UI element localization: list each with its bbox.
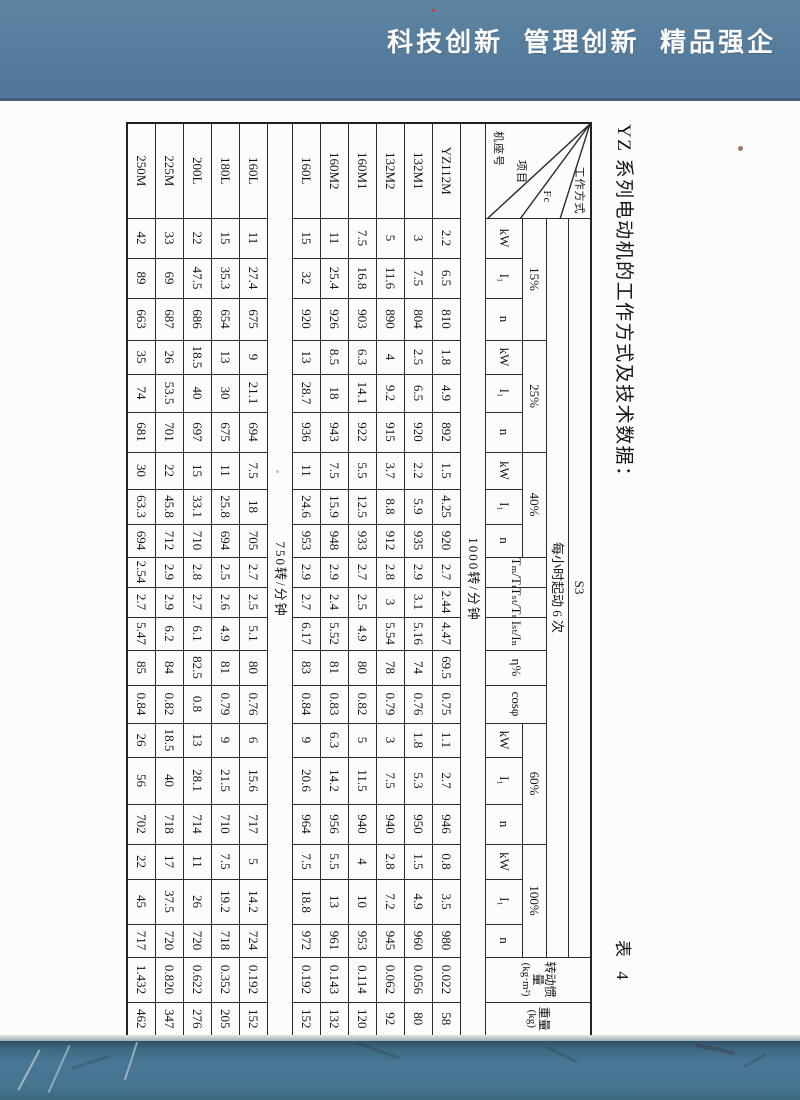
sub-col-header-i: I₁ (486, 374, 523, 412)
value-cell: 717 (127, 924, 156, 957)
value-cell: 717 (240, 804, 268, 844)
value-cell: 912 (377, 524, 405, 557)
sub-col-header-kw: kW (486, 723, 523, 757)
weight-unit: (kg) (526, 1003, 538, 1036)
value-cell: 4.9 (433, 374, 461, 412)
value-cell: 953 (349, 924, 377, 957)
value-cell: 81 (212, 650, 240, 685)
value-cell: 8.5 (321, 340, 349, 374)
value-cell: 0.022 (433, 957, 461, 1002)
value-cell: 0.82 (349, 685, 377, 723)
value-cell: 2.9 (156, 587, 184, 617)
value-cell: 27.4 (240, 258, 268, 298)
value-cell: 26 (184, 879, 212, 924)
value-cell: 1.1 (433, 723, 461, 757)
value-cell: 946 (433, 804, 461, 844)
table-row: 160L15329201328.79361124.69532.92.76.178… (293, 123, 321, 1036)
value-cell: 4.9 (405, 879, 433, 924)
table-row: 200L2247.568618.5406971533.17102.82.76.1… (184, 123, 212, 1036)
value-cell: 58 (433, 1002, 461, 1036)
value-cell: 0.76 (240, 685, 268, 723)
value-cell: 694 (240, 412, 268, 452)
value-cell: 0.622 (184, 957, 212, 1002)
value-cell: 6.3 (321, 723, 349, 757)
value-cell: 675 (240, 298, 268, 340)
value-cell: 74 (127, 374, 156, 412)
value-cell: 16.8 (349, 258, 377, 298)
value-cell: 20.6 (293, 757, 321, 804)
value-cell: 4 (349, 844, 377, 879)
value-cell: 152 (293, 1002, 321, 1036)
value-cell: 3 (377, 723, 405, 757)
table-caption: 表 4 (612, 940, 637, 985)
value-cell: 2.9 (156, 557, 184, 587)
sub-col-header-i: I₁ (486, 879, 523, 924)
value-cell: 37.5 (156, 879, 184, 924)
value-cell: 22 (184, 218, 212, 258)
value-cell: 2.5 (212, 557, 240, 587)
corner-cell: 工作方式Fc项目机座号 (486, 123, 592, 218)
value-cell: 7.5 (405, 258, 433, 298)
sub-col-header-n: n (486, 298, 523, 340)
value-cell: 22 (156, 452, 184, 489)
value-cell: 0.143 (321, 957, 349, 1002)
value-cell: 697 (184, 412, 212, 452)
value-cell: 21.5 (212, 757, 240, 804)
value-cell: 2.5 (240, 587, 268, 617)
sub-col-header-n: n (486, 924, 523, 957)
value-cell: 0.76 (405, 685, 433, 723)
value-cell: 81 (321, 650, 349, 685)
value-cell: 32 (293, 258, 321, 298)
value-cell: 2.7 (293, 587, 321, 617)
frame-size-cell: 250M (127, 123, 156, 218)
frame-size-cell: 200L (184, 123, 212, 218)
value-cell: 15.9 (321, 489, 349, 524)
ratio-col-header-0: Tₘ/Tₙ (486, 557, 547, 587)
value-cell: 1.5 (433, 452, 461, 489)
value-cell: 7.5 (240, 452, 268, 489)
value-cell: 11.5 (349, 757, 377, 804)
value-cell: 2.54 (127, 557, 156, 587)
table-row: 160M17.516.89036.314.19225.512.59332.72.… (349, 123, 377, 1036)
dust-speck (738, 146, 743, 151)
frame-size-cell: 160M1 (349, 123, 377, 218)
value-cell: 2.9 (405, 557, 433, 587)
table-row: 每小时起动 6 次 (547, 123, 569, 1036)
value-cell: 2.7 (240, 557, 268, 587)
value-cell: 11 (212, 452, 240, 489)
value-cell: 915 (377, 412, 405, 452)
smudge-mark (695, 1043, 735, 1055)
value-cell: 2.9 (293, 557, 321, 587)
value-cell: 2.5 (349, 587, 377, 617)
value-cell: 6 (240, 723, 268, 757)
value-cell: 2.8 (184, 557, 212, 587)
weight-title: 重量 (537, 1003, 550, 1036)
value-cell: 13 (293, 340, 321, 374)
value-cell: 5.47 (127, 617, 156, 650)
value-cell: 13 (321, 879, 349, 924)
value-cell: 2.7 (433, 557, 461, 587)
value-cell: 5 (349, 723, 377, 757)
value-cell: 920 (293, 298, 321, 340)
table-row: 15%25%40%Tₘ/TₙTₛₜ/TₙIₛₜ/Iₙη%cosφ60%100% (523, 123, 547, 1036)
frame-size-cell: 160L (293, 123, 321, 218)
value-cell: 720 (156, 924, 184, 957)
value-cell: 5.54 (377, 617, 405, 650)
value-cell: 7.5 (377, 757, 405, 804)
value-cell: 5.16 (405, 617, 433, 650)
value-cell: 890 (377, 298, 405, 340)
speed-section-label: 750转/分钟 (268, 123, 293, 1036)
value-cell: 120 (349, 1002, 377, 1036)
value-cell: 4 (377, 340, 405, 374)
weight-header: 重量(kg) (486, 1002, 592, 1036)
value-cell: 980 (433, 924, 461, 957)
value-cell: 7.5 (321, 452, 349, 489)
value-cell: 152 (240, 1002, 268, 1036)
value-cell: 47.5 (184, 258, 212, 298)
value-cell: 12.5 (349, 489, 377, 524)
value-cell: 10 (349, 879, 377, 924)
sub-col-header-kw: kW (486, 218, 523, 258)
value-cell: 926 (321, 298, 349, 340)
value-cell: 0.352 (212, 957, 240, 1002)
value-cell: 6.1 (184, 617, 212, 650)
smudge-mark (356, 1041, 400, 1060)
value-cell: 63.3 (127, 489, 156, 524)
value-cell: 2.8 (377, 557, 405, 587)
value-cell: 3 (405, 218, 433, 258)
frame-size-cell: 132M2 (377, 123, 405, 218)
table-row: 250M428966335746813063.36942.542.75.4785… (127, 123, 156, 1036)
value-cell: 0.79 (212, 685, 240, 723)
value-cell: 5.52 (321, 617, 349, 650)
value-cell: 18 (321, 374, 349, 412)
value-cell: 694 (212, 524, 240, 557)
duty-25-header: 25% (523, 340, 547, 452)
value-cell: 89 (127, 258, 156, 298)
sub-col-header-i: I₁ (486, 258, 523, 298)
value-cell: 0.192 (240, 957, 268, 1002)
corner-label-frame: 机座号 (491, 131, 503, 167)
table-row: 132M2511.689049.29153.78.89122.835.54780… (377, 123, 405, 1036)
value-cell: 83 (293, 650, 321, 685)
table-row: 180L1535.365413306751125.86942.52.64.981… (212, 123, 240, 1036)
sub-col-header-n: n (486, 524, 523, 557)
duty-15-header: 15% (523, 218, 547, 340)
value-cell: 22 (127, 844, 156, 879)
value-cell: 0.83 (321, 685, 349, 723)
value-cell: 45.8 (156, 489, 184, 524)
value-cell: 19.2 (212, 879, 240, 924)
value-cell: 18 (240, 489, 268, 524)
value-cell: 920 (405, 412, 433, 452)
value-cell: 4.25 (433, 489, 461, 524)
page-title: YZ 系列电动机的工作方式及技术数据： (612, 124, 639, 487)
value-cell: 694 (127, 524, 156, 557)
value-cell: 7.5 (212, 844, 240, 879)
value-cell: 3.5 (433, 879, 461, 924)
value-cell: 30 (127, 452, 156, 489)
table-row: 750转/分钟 (268, 123, 293, 1036)
value-cell: 80 (240, 650, 268, 685)
value-cell: 8.8 (377, 489, 405, 524)
value-cell: 705 (240, 524, 268, 557)
value-cell: 804 (405, 298, 433, 340)
value-cell: 11 (240, 218, 268, 258)
table-row: 160M21125.49268.5189437.515.99482.92.45.… (321, 123, 349, 1036)
scratch-mark (48, 1045, 71, 1093)
value-cell: 2.6 (212, 587, 240, 617)
duty-100-header: 100% (523, 844, 547, 957)
scratch-mark (17, 1049, 40, 1091)
value-cell: 903 (349, 298, 377, 340)
value-cell: 948 (321, 524, 349, 557)
value-cell: 13 (212, 340, 240, 374)
inertia-title: 转动惯量 (531, 960, 556, 1000)
value-cell: 953 (293, 524, 321, 557)
value-cell: 5.1 (240, 617, 268, 650)
value-cell: 718 (156, 804, 184, 844)
corner-label-fc: Fc (540, 191, 552, 204)
value-cell: 6.5 (405, 374, 433, 412)
banner-slogan: 科技创新 管理创新 精品强企 (387, 22, 776, 59)
value-cell: 84 (156, 650, 184, 685)
value-cell: 943 (321, 412, 349, 452)
value-cell: 5.3 (405, 757, 433, 804)
value-cell: 5 (240, 844, 268, 879)
value-cell: 0.192 (293, 957, 321, 1002)
value-cell: 80 (349, 650, 377, 685)
value-cell: 4.47 (433, 617, 461, 650)
corner-label-duty: 工作方式 (572, 167, 584, 215)
frame-size-cell: 225M (156, 123, 184, 218)
value-cell: 5.5 (321, 844, 349, 879)
value-cell: 724 (240, 924, 268, 957)
sub-col-header-i: I₁ (486, 489, 523, 524)
value-cell: 26 (127, 723, 156, 757)
ratio-col-header-2: Iₛₜ/Iₙ (486, 617, 547, 650)
value-cell: 0.8 (433, 844, 461, 879)
frame-size-cell: 180L (212, 123, 240, 218)
value-cell: 347 (156, 1002, 184, 1036)
value-cell: 6.3 (349, 340, 377, 374)
value-cell: 132 (321, 1002, 349, 1036)
table-row: 225M33696872653.57012245.87122.92.96.284… (156, 123, 184, 1036)
smudge-mark (71, 1055, 110, 1070)
value-cell: 710 (212, 804, 240, 844)
table-row: 132M137.58042.56.59202.25.99352.93.15.16… (405, 123, 433, 1036)
value-cell: 681 (127, 412, 156, 452)
sub-col-header-kw: kW (486, 844, 523, 879)
value-cell: 2.44 (433, 587, 461, 617)
starts-per-hour-header: 每小时起动 6 次 (547, 218, 569, 957)
value-cell: 810 (433, 298, 461, 340)
value-cell: 14.2 (321, 757, 349, 804)
inertia-unit: (kg·m²) (520, 958, 532, 1002)
value-cell: 936 (293, 412, 321, 452)
value-cell: 960 (405, 924, 433, 957)
smudge-mark (546, 1046, 578, 1064)
value-cell: 654 (212, 298, 240, 340)
value-cell: 687 (156, 298, 184, 340)
value-cell: 2.7 (127, 587, 156, 617)
value-cell: 18.5 (156, 723, 184, 757)
duty-60-header: 60% (523, 723, 547, 844)
value-cell: 945 (377, 924, 405, 957)
footer-band (0, 1041, 800, 1100)
value-cell: 14.2 (240, 879, 268, 924)
value-cell: 663 (127, 298, 156, 340)
table-row: 工作方式Fc项目机座号S3转动惯量(kg·m²)重量(kg) (569, 123, 592, 1036)
value-cell: 714 (184, 804, 212, 844)
value-cell: 1.5 (405, 844, 433, 879)
value-cell: 2.9 (321, 557, 349, 587)
frame-size-cell: 160L (240, 123, 268, 218)
value-cell: 0.056 (405, 957, 433, 1002)
value-cell: 40 (156, 757, 184, 804)
frame-size-cell: 132M1 (405, 123, 433, 218)
frame-size-cell: YZ112M (433, 123, 461, 218)
value-cell: 9 (240, 340, 268, 374)
frame-size-cell: 160M2 (321, 123, 349, 218)
value-cell: 69 (156, 258, 184, 298)
value-cell: 1.432 (127, 957, 156, 1002)
value-cell: 56 (127, 757, 156, 804)
value-cell: 11.6 (377, 258, 405, 298)
value-cell: 0.84 (127, 685, 156, 723)
value-cell: 6.5 (433, 258, 461, 298)
value-cell: 972 (293, 924, 321, 957)
value-cell: 205 (212, 1002, 240, 1036)
value-cell: 80 (405, 1002, 433, 1036)
value-cell: 21.1 (240, 374, 268, 412)
value-cell: 18.8 (293, 879, 321, 924)
value-cell: 2.5 (405, 340, 433, 374)
value-cell: 15 (184, 452, 212, 489)
value-cell: 0.8 (184, 685, 212, 723)
value-cell: 30 (212, 374, 240, 412)
value-cell: 17 (156, 844, 184, 879)
value-cell: 2.8 (377, 844, 405, 879)
value-cell: 4.9 (349, 617, 377, 650)
value-cell: 5.9 (405, 489, 433, 524)
ratio-col-header-1: Tₛₜ/Tₙ (486, 587, 547, 617)
value-cell: 2.7 (349, 557, 377, 587)
banner-bar: 科技创新 管理创新 精品强企 (0, 0, 800, 101)
value-cell: 2.2 (433, 218, 461, 258)
ratio-col-header-3: η% (486, 650, 547, 685)
value-cell: 28.7 (293, 374, 321, 412)
value-cell: 92 (377, 1002, 405, 1036)
scratch-mark (124, 1042, 138, 1081)
sub-col-header-kw: kW (486, 340, 523, 374)
value-cell: 718 (212, 924, 240, 957)
value-cell: 686 (184, 298, 212, 340)
value-cell: 11 (293, 452, 321, 489)
value-cell: 964 (293, 804, 321, 844)
value-cell: 69.5 (433, 650, 461, 685)
sub-col-header-n: n (486, 804, 523, 844)
value-cell: 11 (184, 844, 212, 879)
value-cell: 0.820 (156, 957, 184, 1002)
value-cell: 940 (349, 804, 377, 844)
dust-speck (276, 470, 279, 473)
sub-col-header-kw: kW (486, 452, 523, 489)
value-cell: 2.7 (433, 757, 461, 804)
value-cell: 9 (212, 723, 240, 757)
value-cell: 0.75 (433, 685, 461, 723)
value-cell: 5 (377, 218, 405, 258)
value-cell: 2.2 (405, 452, 433, 489)
value-cell: 35.3 (212, 258, 240, 298)
value-cell: 74 (405, 650, 433, 685)
value-cell: 3 (377, 587, 405, 617)
value-cell: 85 (127, 650, 156, 685)
value-cell: 35 (127, 340, 156, 374)
ratio-col-header-4: cosφ (486, 685, 547, 723)
value-cell: 14.1 (349, 374, 377, 412)
value-cell: 2.4 (321, 587, 349, 617)
value-cell: 892 (433, 412, 461, 452)
sub-col-header-i: I₁ (486, 757, 523, 804)
value-cell: 18.5 (184, 340, 212, 374)
value-cell: 45 (127, 879, 156, 924)
value-cell: 33 (156, 218, 184, 258)
value-cell: 9 (293, 723, 321, 757)
speed-section-label: 1000转/分钟 (461, 123, 486, 1036)
inertia-header: 转动惯量(kg·m²) (486, 957, 592, 1002)
value-cell: 3.7 (377, 452, 405, 489)
value-cell: 940 (377, 804, 405, 844)
duty-40-header: 40% (523, 452, 547, 557)
value-cell: 33.1 (184, 489, 212, 524)
value-cell: 82.5 (184, 650, 212, 685)
value-cell: 15 (293, 218, 321, 258)
value-cell: 0.114 (349, 957, 377, 1002)
corner-label-item: 项目 (514, 160, 526, 184)
value-cell: 701 (156, 412, 184, 452)
value-cell: 922 (349, 412, 377, 452)
value-cell: 25.8 (212, 489, 240, 524)
value-cell: 53.5 (156, 374, 184, 412)
value-cell: 28.1 (184, 757, 212, 804)
value-cell: 7.5 (349, 218, 377, 258)
value-cell: 13 (184, 723, 212, 757)
value-cell: 0.82 (156, 685, 184, 723)
value-cell: 710 (184, 524, 212, 557)
value-cell: 15.6 (240, 757, 268, 804)
table-row: 160L1127.4675921.16947.5187052.72.55.180… (240, 123, 268, 1036)
value-cell: 7.2 (377, 879, 405, 924)
value-cell: 9.2 (377, 374, 405, 412)
value-cell: 0.84 (293, 685, 321, 723)
value-cell: 933 (349, 524, 377, 557)
s3-header: S3 (569, 218, 592, 957)
value-cell: 24.6 (293, 489, 321, 524)
value-cell: 7.5 (293, 844, 321, 879)
value-cell: 15 (212, 218, 240, 258)
table-row: YZ112M2.26.58101.84.98921.54.259202.72.4… (433, 123, 461, 1036)
value-cell: 40 (184, 374, 212, 412)
value-cell: 5.5 (349, 452, 377, 489)
value-cell: 935 (405, 524, 433, 557)
sub-col-header-n: n (486, 412, 523, 452)
smudge-mark (743, 1053, 767, 1069)
value-cell: 6.17 (293, 617, 321, 650)
